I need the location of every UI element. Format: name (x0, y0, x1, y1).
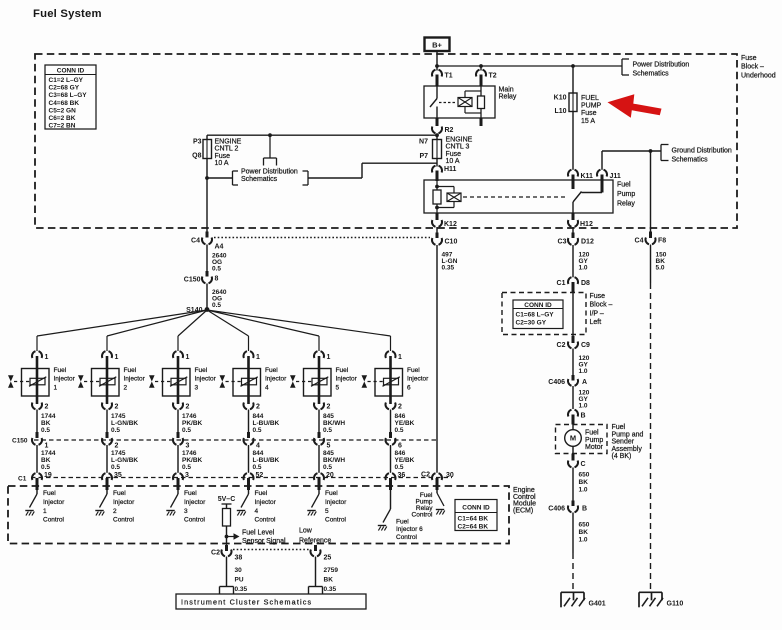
svg-text:Fuse: Fuse (741, 55, 757, 62)
svg-text:Block –: Block – (590, 302, 613, 309)
svg-text:BK: BK (41, 457, 51, 464)
svg-text:1: 1 (398, 354, 402, 361)
svg-text:1: 1 (186, 354, 190, 361)
svg-text:Left: Left (590, 319, 602, 326)
svg-text:L-GN/BK: L-GN/BK (111, 420, 138, 427)
svg-text:Fuse: Fuse (215, 153, 231, 160)
svg-text:0.5: 0.5 (253, 464, 262, 471)
svg-text:T1: T1 (445, 73, 453, 80)
svg-text:Fuse: Fuse (590, 293, 606, 300)
svg-text:Instrument Cluster Schematics: Instrument Cluster Schematics (181, 597, 312, 606)
svg-text:5: 5 (325, 508, 329, 515)
svg-text:G401: G401 (589, 601, 606, 608)
svg-text:25: 25 (324, 555, 332, 562)
svg-text:6: 6 (407, 384, 411, 391)
svg-text:C3: C3 (558, 239, 567, 246)
svg-text:C1=68 L–GY: C1=68 L–GY (516, 312, 555, 319)
svg-text:1: 1 (45, 354, 49, 361)
svg-text:Injector: Injector (407, 376, 429, 383)
svg-text:5: 5 (327, 443, 331, 450)
svg-text:C406: C406 (548, 506, 565, 513)
svg-text:L-GN/BK: L-GN/BK (111, 457, 138, 464)
svg-text:T2: T2 (489, 73, 497, 80)
svg-text:Fuel: Fuel (184, 490, 197, 497)
svg-text:0.5: 0.5 (111, 427, 120, 434)
svg-text:Schematics: Schematics (241, 176, 278, 183)
svg-text:0.5: 0.5 (395, 464, 404, 471)
svg-text:ENGINE: ENGINE (215, 139, 242, 146)
svg-text:0.5: 0.5 (323, 427, 332, 434)
svg-text:5: 5 (336, 384, 340, 391)
svg-text:0.35: 0.35 (235, 586, 248, 593)
svg-text:C10: C10 (445, 239, 458, 246)
svg-text:2: 2 (115, 443, 119, 450)
svg-text:A4: A4 (215, 244, 224, 251)
svg-text:1744: 1744 (41, 413, 56, 420)
svg-text:10 A: 10 A (215, 160, 229, 167)
svg-text:845: 845 (323, 413, 334, 420)
svg-text:Injector 6: Injector 6 (396, 526, 423, 533)
svg-text:Sensor Signal: Sensor Signal (242, 538, 286, 545)
svg-text:C9: C9 (581, 342, 590, 349)
svg-text:Injector: Injector (325, 499, 347, 506)
svg-text:C1: C1 (18, 476, 27, 483)
svg-text:1: 1 (256, 354, 260, 361)
svg-text:C2=68 GY: C2=68 GY (49, 85, 80, 92)
svg-text:Fuel System: Fuel System (33, 8, 102, 20)
svg-text:M: M (570, 434, 576, 443)
svg-text:2: 2 (45, 404, 49, 411)
svg-text:Assembly: Assembly (612, 446, 643, 453)
svg-text:D12: D12 (581, 239, 594, 246)
svg-text:1: 1 (115, 354, 119, 361)
svg-text:Fuel: Fuel (124, 367, 137, 374)
svg-text:1: 1 (45, 443, 49, 450)
svg-text:Injector: Injector (336, 376, 358, 383)
svg-text:F8: F8 (658, 238, 666, 245)
svg-text:0.5: 0.5 (253, 427, 262, 434)
svg-text:J11: J11 (610, 173, 621, 180)
svg-text:BK: BK (41, 420, 51, 427)
svg-text:PUMP: PUMP (581, 103, 602, 110)
svg-text:Injector: Injector (255, 499, 277, 506)
svg-text:Fuel Level: Fuel Level (242, 529, 275, 536)
svg-text:Control: Control (325, 517, 347, 524)
svg-text:0.5: 0.5 (111, 464, 120, 471)
svg-text:C4: C4 (191, 238, 200, 245)
svg-text:CNTL 3: CNTL 3 (446, 144, 470, 151)
svg-text:1.0: 1.0 (579, 487, 588, 494)
svg-text:2: 2 (186, 404, 190, 411)
svg-text:4: 4 (265, 384, 269, 391)
svg-text:Relay: Relay (617, 201, 635, 208)
svg-text:Fuel: Fuel (336, 367, 349, 374)
svg-text:1: 1 (43, 508, 47, 515)
svg-text:Control: Control (113, 517, 135, 524)
svg-text:0.35: 0.35 (442, 265, 455, 272)
svg-text:ENGINE: ENGINE (446, 137, 473, 144)
svg-text:C2: C2 (421, 472, 430, 479)
svg-text:L10: L10 (554, 108, 566, 115)
svg-text:Control: Control (43, 517, 65, 524)
svg-text:L-BU/BK: L-BU/BK (253, 420, 280, 427)
svg-text:K11: K11 (581, 173, 594, 180)
svg-text:2759: 2759 (324, 567, 339, 574)
svg-text:5V–C: 5V–C (218, 496, 236, 503)
svg-text:Schematics: Schematics (672, 157, 709, 164)
svg-text:C1: C1 (557, 280, 566, 287)
svg-text:C3=68 L–GY: C3=68 L–GY (49, 92, 88, 99)
svg-text:YE/BK: YE/BK (395, 420, 415, 427)
svg-text:C7=2 BN: C7=2 BN (49, 123, 76, 130)
svg-text:C2=64 BK: C2=64 BK (458, 524, 489, 531)
svg-text:BK/WH: BK/WH (323, 420, 345, 427)
svg-text:Fuel: Fuel (612, 424, 626, 431)
svg-text:Control: Control (412, 512, 434, 519)
svg-text:Relay: Relay (499, 94, 517, 101)
svg-text:B+: B+ (432, 41, 442, 50)
svg-text:BK: BK (324, 577, 334, 584)
svg-text:Injector: Injector (184, 499, 206, 506)
svg-text:C2: C2 (557, 342, 566, 349)
svg-text:Fuel: Fuel (617, 182, 631, 189)
svg-text:30: 30 (446, 472, 454, 479)
svg-text:Motor: Motor (585, 444, 604, 451)
svg-text:H12: H12 (580, 221, 593, 228)
svg-text:Pump: Pump (617, 191, 635, 198)
svg-text:1.0: 1.0 (579, 368, 588, 375)
svg-text:3: 3 (185, 472, 189, 479)
svg-text:4: 4 (255, 508, 259, 515)
svg-text:Fuel: Fuel (113, 490, 126, 497)
svg-text:Power Distribution: Power Distribution (241, 169, 298, 176)
svg-text:3: 3 (186, 443, 190, 450)
svg-text:Fuel: Fuel (255, 490, 268, 497)
svg-text:15 A: 15 A (581, 118, 595, 125)
svg-text:2: 2 (256, 404, 260, 411)
svg-text:Fuel: Fuel (54, 367, 67, 374)
svg-text:C4=68 BK: C4=68 BK (49, 100, 80, 107)
svg-text:0.5: 0.5 (41, 427, 50, 434)
svg-text:Schematics: Schematics (633, 71, 670, 78)
svg-text:C6=2 BK: C6=2 BK (49, 115, 76, 122)
svg-text:PK/BK: PK/BK (182, 457, 203, 464)
svg-text:H11: H11 (444, 166, 457, 173)
svg-text:Fuel: Fuel (396, 519, 409, 526)
svg-text:Power Distribution: Power Distribution (633, 62, 690, 69)
svg-text:1: 1 (327, 354, 331, 361)
svg-text:650: 650 (579, 522, 590, 529)
svg-text:Fuel: Fuel (195, 367, 208, 374)
svg-text:N7: N7 (419, 139, 428, 146)
svg-text:BK/WH: BK/WH (323, 457, 345, 464)
svg-text:650: 650 (579, 472, 590, 479)
svg-text:2: 2 (113, 508, 117, 515)
svg-text:CONN ID: CONN ID (524, 302, 552, 309)
svg-text:Sender: Sender (612, 439, 635, 446)
svg-text:0.5: 0.5 (182, 427, 191, 434)
svg-text:Fuel: Fuel (325, 490, 338, 497)
svg-text:Block –: Block – (741, 64, 764, 71)
svg-text:8: 8 (215, 276, 219, 283)
svg-text:Ground Distribution: Ground Distribution (672, 148, 732, 155)
svg-text:Control: Control (396, 534, 418, 541)
svg-text:2: 2 (124, 384, 128, 391)
svg-text:C2=30 GY: C2=30 GY (516, 320, 547, 327)
svg-text:845: 845 (323, 450, 334, 457)
svg-text:10 A: 10 A (446, 158, 460, 165)
svg-text:Fuse: Fuse (446, 151, 462, 158)
svg-text:30: 30 (235, 567, 243, 574)
svg-text:1744: 1744 (41, 450, 56, 457)
svg-text:Control: Control (184, 517, 206, 524)
svg-text:Fuel: Fuel (407, 367, 420, 374)
svg-text:Pump: Pump (585, 437, 603, 444)
svg-text:Injector: Injector (54, 376, 76, 383)
svg-text:Reference: Reference (299, 538, 331, 545)
svg-text:1.0: 1.0 (579, 537, 588, 544)
svg-text:C4: C4 (635, 238, 644, 245)
svg-text:1746: 1746 (182, 450, 197, 457)
svg-text:846: 846 (395, 413, 406, 420)
svg-text:3: 3 (195, 384, 199, 391)
svg-text:0.5: 0.5 (212, 266, 221, 273)
svg-text:Fuel: Fuel (585, 430, 599, 437)
svg-text:K12: K12 (444, 221, 457, 228)
svg-text:Underhood: Underhood (741, 72, 776, 79)
svg-text:FUEL: FUEL (581, 95, 599, 102)
svg-text:Low: Low (299, 528, 313, 535)
svg-text:2: 2 (327, 404, 331, 411)
svg-text:Injector: Injector (265, 376, 287, 383)
svg-text:Main: Main (499, 87, 514, 94)
svg-text:1745: 1745 (111, 450, 126, 457)
svg-text:PU: PU (235, 577, 244, 584)
svg-text:PK/BK: PK/BK (182, 420, 203, 427)
svg-text:P3: P3 (193, 139, 202, 146)
svg-text:C406: C406 (548, 379, 565, 386)
svg-text:D8: D8 (581, 280, 590, 287)
svg-text:1746: 1746 (182, 413, 197, 420)
svg-text:0.5: 0.5 (182, 464, 191, 471)
svg-text:844: 844 (253, 450, 264, 457)
svg-text:A: A (582, 379, 587, 386)
svg-text:CONN ID: CONN ID (462, 505, 490, 512)
svg-text:Q8: Q8 (192, 153, 201, 160)
svg-text:1745: 1745 (111, 413, 126, 420)
svg-text:0.5: 0.5 (212, 302, 221, 309)
svg-text:BK: BK (579, 529, 589, 536)
svg-text:1.0: 1.0 (579, 265, 588, 272)
svg-text:P7: P7 (419, 153, 428, 160)
svg-text:Injector: Injector (195, 376, 217, 383)
svg-text:C2: C2 (211, 550, 220, 557)
svg-text:6: 6 (398, 443, 402, 450)
svg-text:3: 3 (184, 508, 188, 515)
svg-text:0.5: 0.5 (323, 464, 332, 471)
svg-text:G110: G110 (667, 601, 684, 608)
svg-text:(4 BK): (4 BK) (612, 453, 632, 460)
svg-text:(ECM): (ECM) (513, 507, 533, 514)
svg-text:5.0: 5.0 (656, 265, 665, 272)
svg-text:38: 38 (235, 555, 243, 562)
svg-text:0.35: 0.35 (324, 586, 337, 593)
svg-text:C1=2 L–GY: C1=2 L–GY (49, 77, 84, 84)
svg-text:1.0: 1.0 (579, 403, 588, 410)
svg-text:C150: C150 (12, 438, 28, 445)
svg-text:B: B (581, 413, 586, 420)
svg-text:846: 846 (395, 450, 406, 457)
svg-text:4: 4 (256, 443, 260, 450)
svg-text:2: 2 (115, 404, 119, 411)
svg-text:Fuel: Fuel (265, 367, 278, 374)
svg-text:L-BU/BK: L-BU/BK (253, 457, 280, 464)
svg-text:I/P –: I/P – (590, 310, 604, 317)
svg-text:C: C (581, 461, 586, 468)
svg-text:B: B (582, 506, 587, 513)
svg-text:0.5: 0.5 (395, 427, 404, 434)
svg-text:K10: K10 (554, 95, 567, 102)
svg-text:Fuel: Fuel (43, 490, 56, 497)
svg-text:C1=64 BK: C1=64 BK (458, 516, 489, 523)
svg-text:Control: Control (255, 517, 277, 524)
svg-text:Injector: Injector (113, 499, 135, 506)
svg-text:YE/BK: YE/BK (395, 457, 415, 464)
svg-text:Fuse: Fuse (581, 110, 597, 117)
svg-text:Pump and: Pump and (612, 431, 644, 438)
svg-text:C150: C150 (184, 277, 201, 284)
svg-text:1: 1 (54, 384, 58, 391)
svg-text:Injector: Injector (124, 376, 146, 383)
svg-text:0.5: 0.5 (41, 464, 50, 471)
svg-text:CONN ID: CONN ID (57, 68, 85, 75)
svg-text:844: 844 (253, 413, 264, 420)
svg-text:CNTL 2: CNTL 2 (215, 146, 239, 153)
svg-text:Injector: Injector (43, 499, 65, 506)
svg-text:BK: BK (579, 479, 589, 486)
svg-text:R2: R2 (445, 127, 454, 134)
svg-text:C5=2 GN: C5=2 GN (49, 107, 77, 114)
svg-text:2: 2 (398, 404, 402, 411)
